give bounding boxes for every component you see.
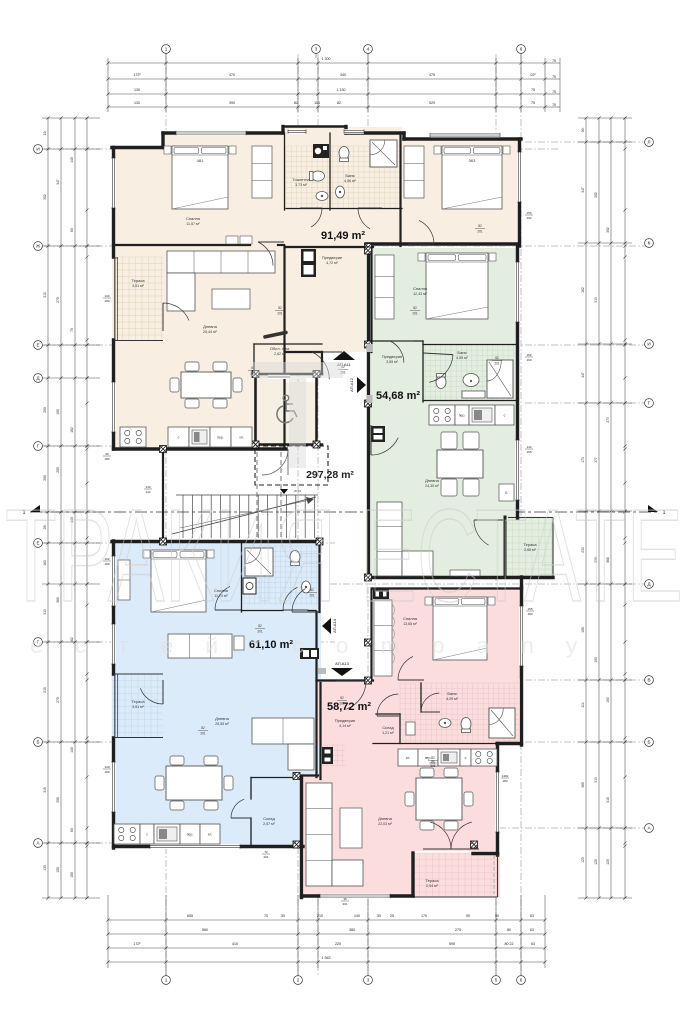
svg-text:90: 90: [495, 914, 499, 918]
svg-text:72: 72: [264, 850, 268, 854]
svg-text:595: 595: [449, 942, 455, 946]
svg-text:2,57 м²: 2,57 м²: [263, 822, 275, 826]
svg-text:И: И: [36, 147, 39, 152]
svg-text:180: 180: [502, 779, 507, 783]
svg-text:3: 3: [315, 47, 318, 52]
svg-text:35: 35: [281, 914, 285, 918]
svg-text:173: 173: [581, 457, 585, 463]
svg-text:290: 290: [43, 475, 47, 481]
svg-text:Дневна: Дневна: [378, 816, 392, 821]
svg-text:75: 75: [552, 59, 556, 63]
svg-text:63: 63: [530, 914, 534, 918]
svg-text:82: 82: [340, 696, 344, 700]
svg-text:140: 140: [70, 747, 74, 753]
svg-text:Е: Е: [36, 343, 39, 348]
svg-text:4,72 м²: 4,72 м²: [326, 261, 338, 265]
svg-text:190: 190: [56, 409, 60, 415]
svg-text:90: 90: [466, 914, 470, 918]
svg-text:ТРАКИЯ ЕСТАТЕ: ТРАКИЯ ЕСТАТЕ: [5, 482, 683, 629]
svg-text:60: 60: [105, 452, 109, 456]
svg-text:560: 560: [202, 928, 208, 932]
svg-text:170: 170: [421, 914, 427, 918]
svg-text:3: 3: [367, 978, 370, 983]
svg-text:82: 82: [478, 224, 482, 228]
svg-text:пер.: пер.: [459, 414, 466, 418]
svg-text:хл.: хл.: [406, 756, 411, 760]
svg-text:82: 82: [413, 306, 417, 310]
svg-text:270: 270: [56, 297, 60, 303]
svg-text:165: 165: [526, 450, 531, 454]
svg-text:с: с: [504, 414, 506, 418]
svg-text:75: 75: [531, 101, 535, 105]
svg-text:140: 140: [70, 157, 74, 163]
svg-text:11,57 м²: 11,57 м²: [186, 222, 200, 226]
svg-text:162: 162: [581, 287, 585, 293]
svg-text:160: 160: [526, 358, 531, 362]
svg-text:60: 60: [70, 228, 74, 232]
svg-text:Тераса: Тераса: [131, 278, 145, 283]
svg-text:1 130: 1 130: [337, 88, 346, 92]
svg-text:3,55 м²: 3,55 м²: [386, 360, 398, 364]
svg-text:300: 300: [56, 797, 60, 803]
svg-text:313: 313: [594, 777, 598, 783]
svg-text:302: 302: [606, 227, 610, 233]
svg-text:201: 201: [494, 362, 500, 366]
svg-text:140: 140: [354, 914, 360, 918]
svg-text:142: 142: [526, 445, 531, 449]
svg-text:75: 75: [552, 75, 556, 79]
svg-text:340: 340: [340, 73, 346, 77]
svg-text:54,68 m²: 54,68 m²: [376, 390, 420, 402]
svg-text:75: 75: [552, 103, 556, 107]
svg-text:4,59 м²: 4,59 м²: [456, 356, 468, 360]
svg-text:Баня: Баня: [447, 691, 456, 696]
svg-text:22,03 м²: 22,03 м²: [378, 822, 392, 826]
svg-text:5: 5: [495, 978, 498, 983]
svg-text:162: 162: [526, 353, 531, 357]
svg-text:Обсл. пом.: Обсл. пом.: [270, 346, 290, 351]
svg-text:313: 313: [43, 292, 47, 298]
svg-text:162: 162: [70, 427, 74, 433]
svg-text:25,44 м²: 25,44 м²: [203, 330, 217, 334]
svg-text:149: 149: [104, 765, 109, 769]
svg-text:К: К: [648, 241, 651, 246]
svg-text:2,54 м²: 2,54 м²: [426, 884, 438, 888]
svg-text:201: 201: [430, 764, 435, 768]
svg-text:1 363: 1 363: [322, 956, 331, 960]
svg-text:82: 82: [337, 101, 341, 105]
svg-text:120: 120: [581, 857, 585, 863]
svg-text:75: 75: [552, 90, 556, 94]
svg-text:297,28 m²: 297,28 m²: [306, 469, 354, 481]
svg-text:пер.: пер.: [187, 833, 194, 837]
svg-text:с: с: [178, 436, 180, 440]
svg-text:3,51 м²: 3,51 м²: [132, 284, 144, 288]
svg-text:Предверие: Предверие: [335, 718, 356, 723]
svg-text:70: 70: [264, 914, 268, 918]
svg-text:Дневна: Дневна: [215, 716, 229, 721]
svg-text:315: 315: [606, 797, 610, 803]
svg-text:313: 313: [594, 297, 598, 303]
svg-text:Дневна: Дневна: [203, 324, 217, 329]
svg-text:302: 302: [43, 194, 47, 200]
svg-text:192: 192: [526, 216, 531, 220]
svg-text:215: 215: [43, 687, 47, 693]
svg-text:390: 390: [229, 101, 235, 105]
svg-text:3,51 м²: 3,51 м²: [132, 705, 144, 709]
svg-text:193: 193: [594, 657, 598, 663]
svg-text:150: 150: [70, 872, 74, 878]
svg-text:4: 4: [367, 47, 370, 52]
svg-text:Предверие: Предверие: [382, 354, 403, 359]
svg-text:447: 447: [581, 372, 585, 378]
svg-text:Тоалетна: Тоалетна: [292, 177, 310, 182]
svg-text:1 300: 1 300: [322, 57, 331, 61]
svg-text:пер.: пер.: [217, 436, 224, 440]
svg-text:63: 63: [530, 928, 534, 932]
svg-text:Л: Л: [647, 140, 650, 145]
svg-text:82: 82: [495, 356, 499, 360]
svg-text:180: 180: [104, 457, 109, 461]
svg-text:113: 113: [314, 101, 320, 105]
svg-text:Тераса: Тераса: [425, 878, 439, 883]
svg-text:201: 201: [339, 702, 345, 706]
svg-text:80: 80: [507, 928, 511, 932]
svg-text:Склад: Склад: [263, 816, 275, 821]
svg-text:02²: 02²: [530, 73, 536, 77]
svg-text:82: 82: [278, 306, 282, 310]
svg-text:Спалня: Спалня: [413, 286, 427, 291]
svg-text:120: 120: [594, 859, 598, 865]
svg-text:365: 365: [581, 782, 585, 788]
svg-text:25: 25: [390, 914, 394, 918]
svg-text:е с т е й т c o m p a n y: е с т е й т c o m p a n y: [30, 633, 590, 658]
svg-text:180: 180: [104, 770, 109, 774]
svg-text:82: 82: [431, 759, 435, 763]
svg-text:200: 200: [43, 407, 47, 413]
svg-text:220: 220: [335, 942, 341, 946]
svg-text:6: 6: [520, 978, 523, 983]
svg-text:347: 347: [581, 187, 585, 193]
svg-text:58,72 m²: 58,72 m²: [327, 701, 371, 713]
svg-text:4,29 м²: 4,29 м²: [446, 697, 458, 701]
svg-text:470: 470: [229, 73, 235, 77]
svg-text:201: 201: [342, 902, 347, 906]
svg-text:82: 82: [201, 726, 205, 730]
svg-text:120: 120: [606, 859, 610, 865]
svg-text:60: 60: [70, 828, 74, 832]
svg-text:Б: Б: [36, 740, 39, 745]
svg-text:201: 201: [477, 230, 483, 234]
svg-text:302: 302: [594, 192, 598, 198]
svg-text:Предверие: Предверие: [322, 255, 343, 260]
svg-text:Б: Б: [647, 740, 650, 745]
svg-text:410: 410: [232, 942, 238, 946]
svg-text:270: 270: [56, 697, 60, 703]
svg-text:2,62 м²: 2,62 м²: [274, 352, 286, 356]
svg-text:201: 201: [412, 312, 418, 316]
svg-text:273: 273: [606, 417, 610, 423]
svg-text:2: 2: [297, 978, 300, 983]
svg-text:Склад: Склад: [382, 725, 394, 730]
svg-text:114: 114: [581, 702, 585, 707]
svg-text:250: 250: [56, 467, 60, 473]
svg-text:Спалня: Спалня: [186, 216, 200, 221]
svg-text:80 22: 80 22: [505, 942, 514, 946]
svg-text:35: 35: [377, 914, 381, 918]
svg-text:140: 140: [104, 294, 109, 298]
svg-text:130: 130: [134, 88, 140, 92]
svg-text:150: 150: [56, 867, 60, 873]
svg-text:201: 201: [263, 855, 268, 859]
svg-text:177: 177: [594, 457, 598, 463]
svg-text:1402: 1402: [502, 774, 509, 778]
svg-text:АП.А12: АП.А12: [349, 377, 354, 392]
svg-text:210: 210: [317, 914, 323, 918]
svg-text:63: 63: [531, 942, 535, 946]
svg-text:150: 150: [526, 211, 531, 215]
svg-text:АП.А13: АП.А13: [335, 661, 350, 666]
svg-text:172²: 172²: [133, 73, 141, 77]
svg-text:хл.: хл.: [239, 436, 244, 440]
svg-text:91,49 m²: 91,49 m²: [321, 230, 365, 242]
svg-text:В: В: [647, 678, 650, 683]
svg-text:3,73 м²: 3,73 м²: [295, 183, 307, 187]
svg-text:655: 655: [187, 914, 193, 918]
svg-text:4,06 м²: 4,06 м²: [344, 179, 356, 183]
svg-text:1: 1: [165, 47, 168, 52]
svg-text:с: с: [465, 756, 467, 760]
svg-text:Тераса: Тераса: [131, 699, 145, 704]
svg-text:82: 82: [294, 101, 298, 105]
svg-text:201: 201: [277, 312, 283, 316]
svg-text:1,21 м²: 1,21 м²: [382, 731, 394, 735]
svg-text:25,55 м²: 25,55 м²: [215, 722, 229, 726]
svg-text:И: И: [647, 342, 650, 347]
svg-text:с: с: [146, 833, 148, 837]
svg-text:475: 475: [429, 73, 435, 77]
svg-text:70: 70: [70, 328, 74, 332]
svg-text:Баня: Баня: [457, 350, 466, 355]
svg-text:481: 481: [197, 158, 204, 163]
svg-text:4,14 м²: 4,14 м²: [339, 724, 351, 728]
svg-text:12,43 м²: 12,43 м²: [413, 292, 427, 296]
svg-text:172²: 172²: [133, 942, 141, 946]
svg-text:529: 529: [429, 101, 435, 105]
svg-text:75: 75: [531, 88, 535, 92]
svg-text:275: 275: [455, 928, 461, 932]
svg-text:363: 363: [469, 158, 476, 163]
svg-text:193: 193: [606, 697, 610, 703]
svg-text:385: 385: [349, 928, 355, 932]
svg-text:Баня: Баня: [345, 173, 354, 178]
svg-text:347: 347: [56, 179, 60, 185]
svg-text:130: 130: [134, 101, 140, 105]
svg-text:хл.: хл.: [208, 833, 213, 837]
svg-text:201: 201: [200, 732, 206, 736]
svg-text:130: 130: [43, 865, 47, 871]
svg-text:180: 180: [104, 299, 109, 303]
svg-text:6: 6: [520, 47, 523, 52]
svg-text:35: 35: [343, 897, 347, 901]
svg-text:315: 315: [43, 787, 47, 793]
svg-text:1: 1: [165, 978, 168, 983]
